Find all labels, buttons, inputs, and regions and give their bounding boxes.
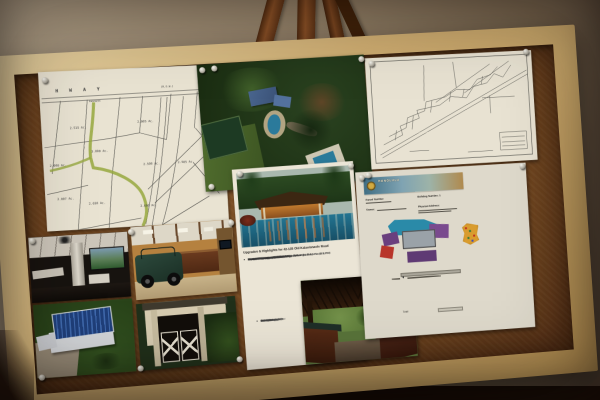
total-value-box	[438, 306, 463, 312]
push-pin	[137, 365, 144, 372]
corner-shadow	[0, 330, 34, 400]
flyer-sub-bullet-item: Wood Shake Roof	[256, 318, 281, 323]
pool-pavilion-photo	[236, 165, 355, 247]
acreage-label: 2.500 Ac.	[143, 161, 160, 166]
lattice-door-right	[180, 329, 200, 361]
push-pin	[228, 220, 234, 226]
acreage-label: 2.505 Ac.	[178, 160, 195, 165]
header-aerial-banner: HONOLULU	[363, 172, 463, 195]
flyer-bullet-item: Outdoor Kitchen Pavilion ($128,000)	[244, 255, 291, 262]
wall-tv	[219, 239, 232, 249]
ceiling-light-2	[177, 228, 187, 233]
cork-board-frame: H W A Y (R.O.W.) Easement 2.515 Ac.2.005…	[0, 25, 598, 400]
footprint-red-section	[380, 245, 394, 259]
second-blue-roof	[273, 95, 291, 108]
interior-room-photo	[28, 232, 131, 303]
push-pin	[39, 374, 46, 381]
orange-outbuilding-sketch	[462, 223, 480, 246]
footprint-gray-center	[402, 229, 436, 249]
landscape-mural	[89, 246, 125, 271]
cork-surface: H W A Y (R.O.W.) Easement 2.515 Ac.2.005…	[14, 44, 574, 394]
county-seal-icon	[367, 181, 376, 190]
building-number-label: Building Number: 1	[417, 194, 440, 198]
foliage-right	[204, 312, 240, 363]
lattice-exterior-photo	[136, 296, 240, 371]
lattice-door-left	[161, 331, 181, 363]
white-table-2	[89, 273, 110, 283]
footprint-purple-bottom	[407, 250, 437, 263]
property-record-doc: HONOLULU Parcel Number Building Number: …	[355, 163, 535, 340]
area-table: 1 2 3 4	[401, 269, 461, 277]
row-number: 9	[403, 277, 404, 280]
orange-sketch-speckles	[465, 227, 467, 229]
survey-map-drawing	[365, 50, 538, 169]
acreage-label: 3.000 Ac.	[91, 148, 108, 153]
tree-canopy-light	[215, 65, 288, 114]
total-label: Total	[403, 310, 409, 313]
address-value-bar-2	[418, 210, 451, 213]
push-pin	[236, 356, 242, 363]
acreage-label: 2.807 Ac.	[57, 196, 74, 201]
garage-utv-photo	[130, 219, 237, 300]
doc-title: HONOLULU	[378, 177, 400, 182]
parcel-number-value-bar	[366, 201, 392, 204]
acreage-label: 2.515 Ac.	[70, 125, 87, 130]
tall-pines-2	[322, 166, 348, 196]
row-value-bar	[392, 278, 400, 279]
acreage-label: 2.660 Ac.	[140, 203, 157, 208]
ceiling-light-3	[204, 227, 213, 232]
acreage-label: 2.000 Ac.	[50, 163, 67, 168]
acreage-label: 2.005 Ac.	[137, 119, 154, 124]
owner-value-bar	[377, 208, 406, 211]
survey-map-right	[365, 50, 538, 169]
tall-pines	[240, 172, 264, 200]
ceiling-light	[143, 230, 154, 235]
shrub-row	[88, 352, 124, 371]
solar-roof-aerial-photo	[33, 298, 137, 378]
photograph-of-pin-board: H W A Y (R.O.W.) Easement 2.515 Ac.2.005…	[0, 0, 600, 400]
owner-label: Owner:	[366, 208, 375, 212]
white-table	[32, 267, 64, 279]
footprint-purple-left	[382, 231, 400, 246]
stone-floor	[334, 339, 380, 362]
acreage-label: 2.650 Ac.	[89, 201, 106, 206]
